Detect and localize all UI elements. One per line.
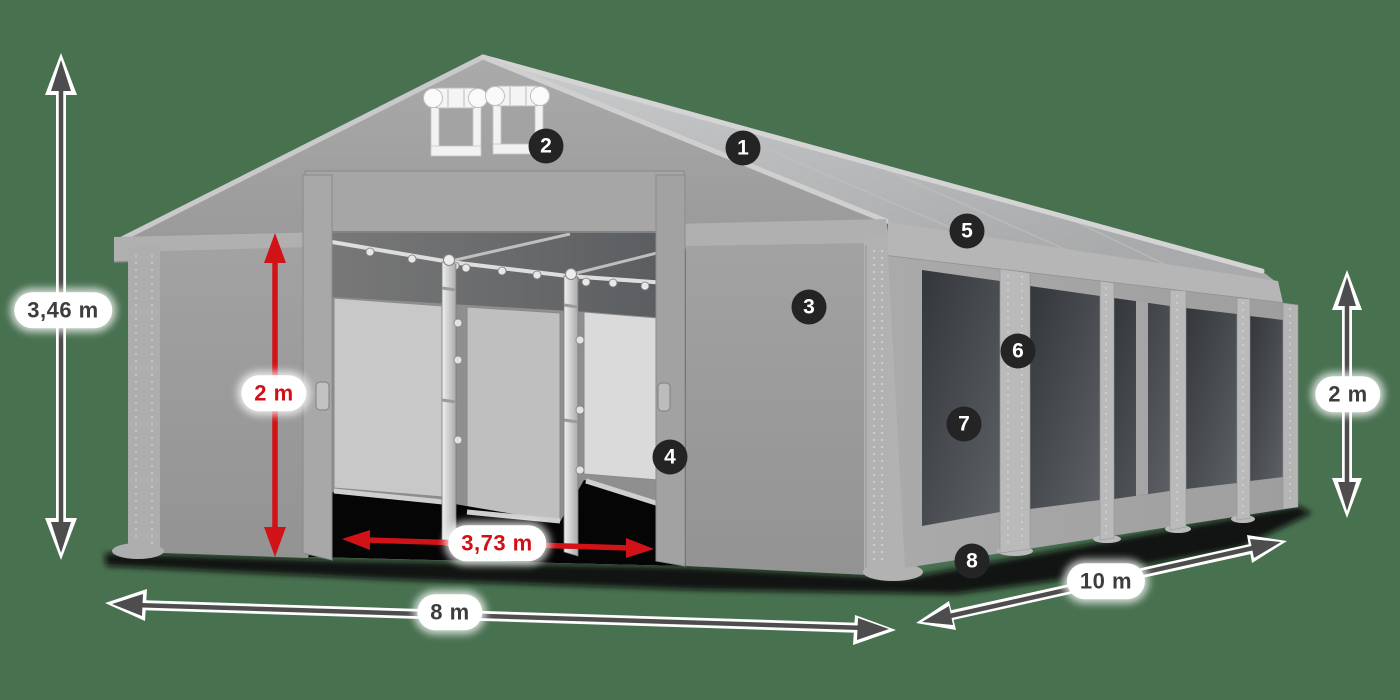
roll-up-vent: [424, 88, 488, 156]
side-window: [1030, 286, 1100, 509]
callout-badge-2[interactable]: 2: [529, 129, 564, 164]
side-window: [922, 270, 1000, 526]
tent-illustration: [0, 0, 1400, 700]
door-latch-left: [316, 382, 329, 410]
dimension-label-side-length: 10 m: [1067, 563, 1145, 599]
dimension-label-entrance-height: 2 m: [241, 375, 306, 411]
dimension-label-side-wall-height: 2 m: [1315, 376, 1380, 412]
callout-badge-8[interactable]: 8: [955, 544, 990, 579]
dimension-label-gable-width: 8 m: [417, 594, 482, 630]
callout-badge-1[interactable]: 1: [726, 131, 761, 166]
interior-panel: [334, 298, 443, 497]
side-window: [1250, 316, 1283, 481]
door-flap-left: [303, 175, 332, 560]
middle-window-divider: [1136, 301, 1148, 496]
front-wall-right: [686, 243, 868, 575]
callout-badge-4[interactable]: 4: [653, 440, 688, 475]
callout-badge-7[interactable]: 7: [947, 407, 982, 442]
side-window: [1186, 308, 1237, 489]
dimension-label-entrance-width: 3,73 m: [448, 525, 546, 561]
callout-badge-3[interactable]: 3: [792, 290, 827, 325]
interior-panel: [467, 307, 560, 520]
entrance-interior: [309, 232, 681, 566]
callout-badge-6[interactable]: 6: [1001, 334, 1036, 369]
callout-badge-5[interactable]: 5: [950, 214, 985, 249]
entrance-lintel: [305, 171, 684, 232]
interior-panel: [584, 312, 658, 480]
door-latch-right: [658, 383, 670, 411]
dimension-label-overall-height: 3,46 m: [14, 292, 112, 328]
door-flap-right: [656, 175, 685, 566]
product-illustration-stage: 3,46 m 2 m 3,73 m 8 m 10 m 2 m 1 2 3 4 5…: [0, 0, 1400, 700]
